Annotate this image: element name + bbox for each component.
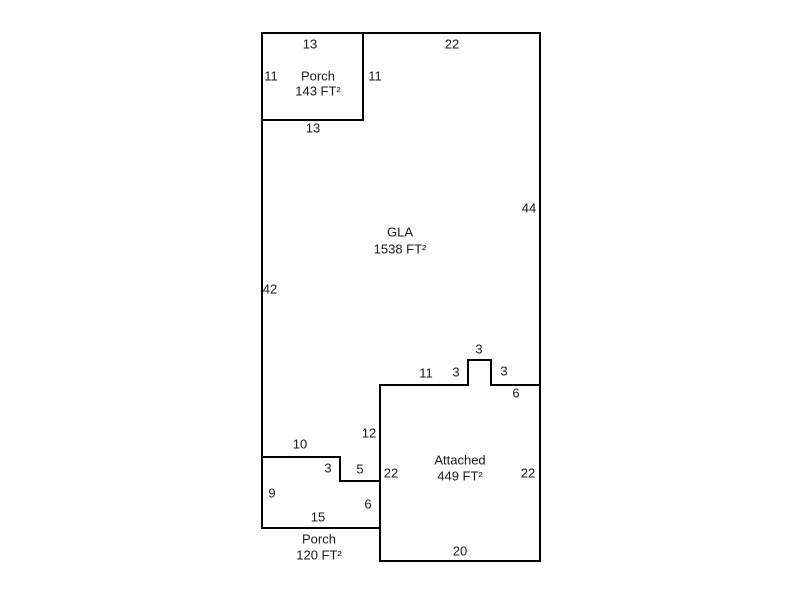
region-title-porch-bottom: Porch [302,533,336,546]
floor-plan-sketch: 132211111344423113361210352222961520 Por… [0,0,800,600]
wall-garage-top-left-edge [379,384,469,386]
region-area-porch-top: 143 FT² [295,85,341,98]
dim-garage-bottom-width: 20 [453,545,467,558]
dim-porch-bottom-top-width: 10 [293,438,307,451]
dim-porch-bottom-left-height: 9 [268,487,275,500]
region-title-gla: GLA [387,226,413,239]
wall-left-edge [261,32,263,529]
wall-garage-bottom-edge [379,560,541,562]
dim-gla-left-height: 42 [263,283,277,296]
region-title-attached-garage: Attached [434,454,485,467]
dim-bump-top-width: 3 [475,343,482,356]
dim-porch-top-right-height: 11 [368,70,382,83]
wall-bump-right-edge [490,359,492,386]
region-area-attached-garage: 449 FT² [437,470,483,483]
dim-garage-top-right-width: 6 [512,387,519,400]
dim-step-height: 3 [324,462,331,475]
dim-garage-top-left-width: 11 [419,367,433,380]
dim-bump-left-height: 3 [452,366,459,379]
wall-bump-top-edge [467,359,492,361]
dim-gla-step-right-height: 12 [362,427,376,440]
dim-bump-right-height: 3 [500,365,507,378]
region-area-gla: 1538 FT² [374,243,427,256]
dim-porch-top-left-height: 11 [264,70,278,83]
wall-top-edge [261,32,541,34]
wall-gla-bottom-left-edge [261,456,341,458]
wall-bump-left-edge [467,359,469,386]
dim-gla-top-width: 22 [445,38,459,51]
region-title-porch-top: Porch [301,70,335,83]
dim-porch-bottom-right-height: 6 [364,498,371,511]
dim-porch-top-bottom-width: 13 [306,122,320,135]
wall-porch-bottom-bottom-edge [261,527,381,529]
dim-porch-top-top-width: 13 [303,38,317,51]
wall-step-bottom-edge [339,480,381,482]
wall-right-edge [539,32,541,562]
wall-step-right-edge [339,456,341,482]
dim-garage-right-height: 22 [521,467,535,480]
wall-porch-top-right-edge [362,32,364,121]
wall-garage-left-edge [379,384,381,562]
dim-gla-right-height: 44 [522,202,536,215]
region-area-porch-bottom: 120 FT² [296,549,342,562]
dim-porch-bottom-bottom-width: 15 [311,511,325,524]
dim-step-width: 5 [356,463,363,476]
dim-garage-left-height: 22 [384,467,398,480]
